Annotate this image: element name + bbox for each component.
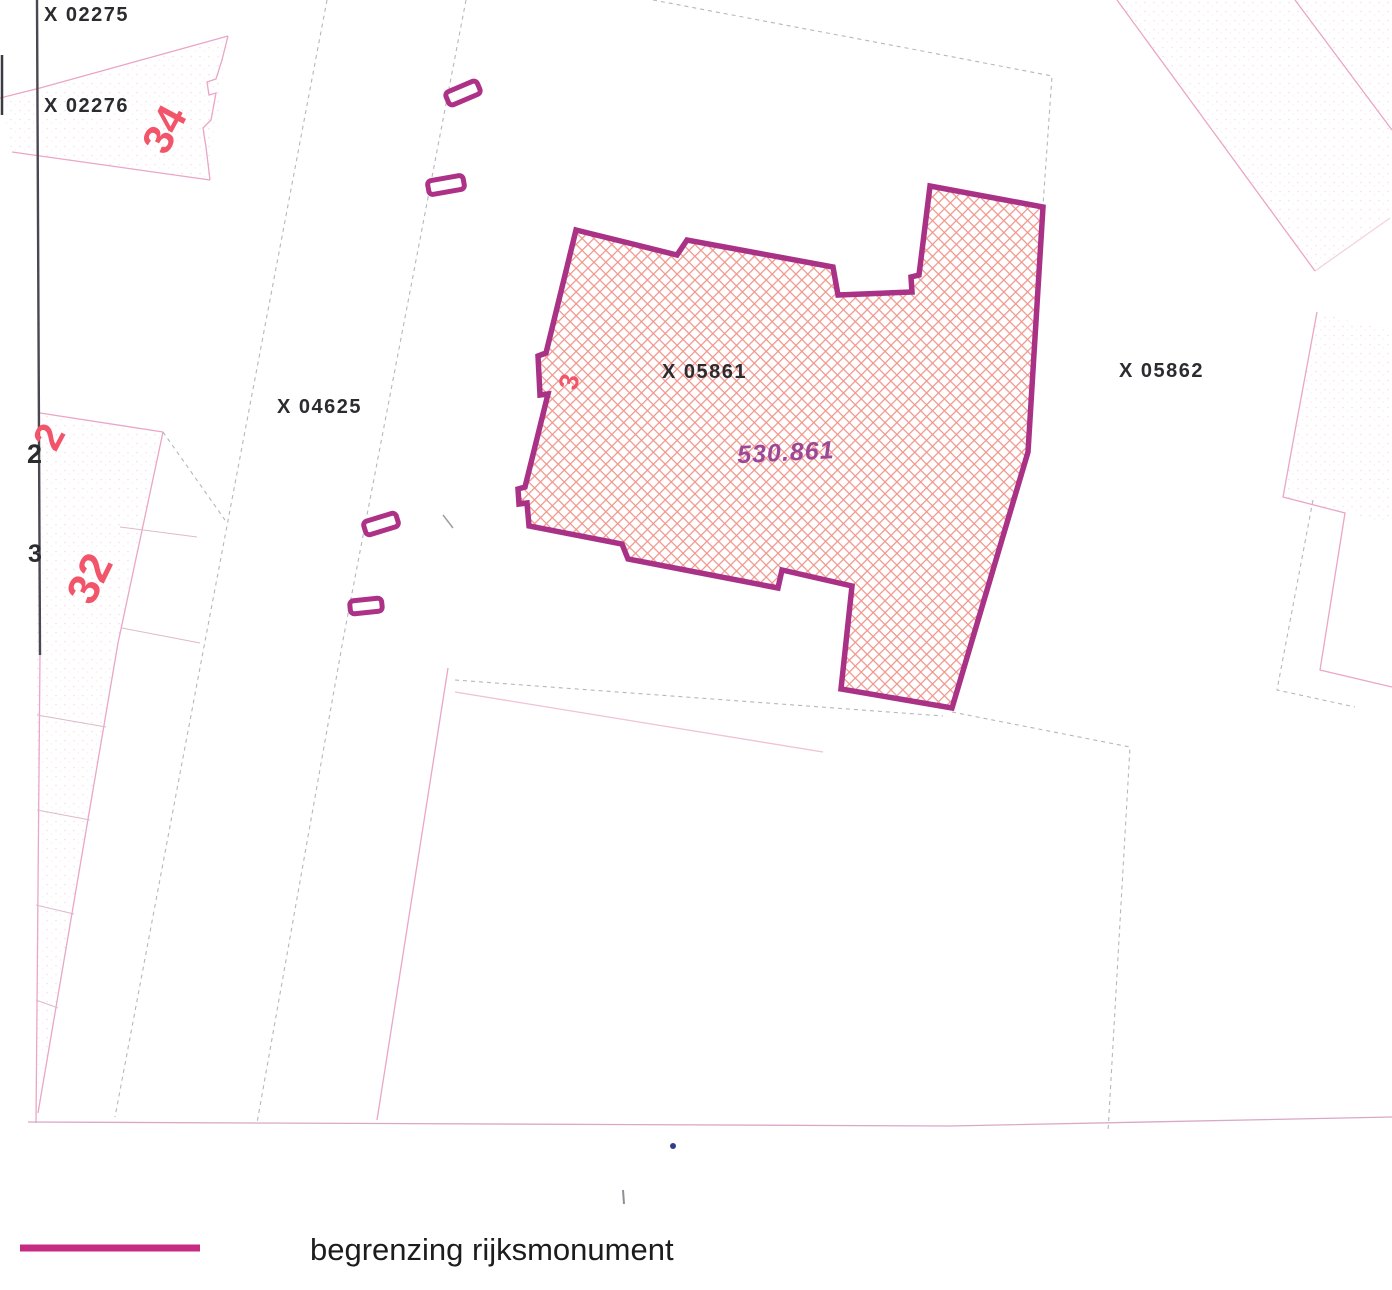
boundary-markers: [349, 80, 481, 614]
survey-point-dot: [670, 1143, 676, 1149]
boundary-marker: [363, 512, 400, 535]
cadastral-map-canvas: X 02275 X 02276 X 04625 X 05861 X 05862 …: [0, 0, 1392, 1290]
parcel-label-x05861: X 05861: [662, 361, 747, 383]
legend: begrenzing rijksmonument: [20, 1232, 674, 1267]
boundary-marker: [445, 80, 482, 106]
parcel-label-x05862: X 05862: [1119, 360, 1204, 382]
parcel-label-x02275: X 02275: [44, 4, 129, 26]
monument-area-label: 530.861: [736, 436, 835, 469]
legend-label: begrenzing rijksmonument: [310, 1232, 674, 1267]
boundary-marker: [349, 598, 382, 614]
boundary-marker: [427, 175, 465, 195]
partial-number-3: 3: [28, 540, 42, 568]
parcel-label-x02276: X 02276: [44, 95, 129, 117]
parcel-label-x04625: X 04625: [277, 396, 362, 418]
partial-number-2: 2: [27, 439, 42, 469]
